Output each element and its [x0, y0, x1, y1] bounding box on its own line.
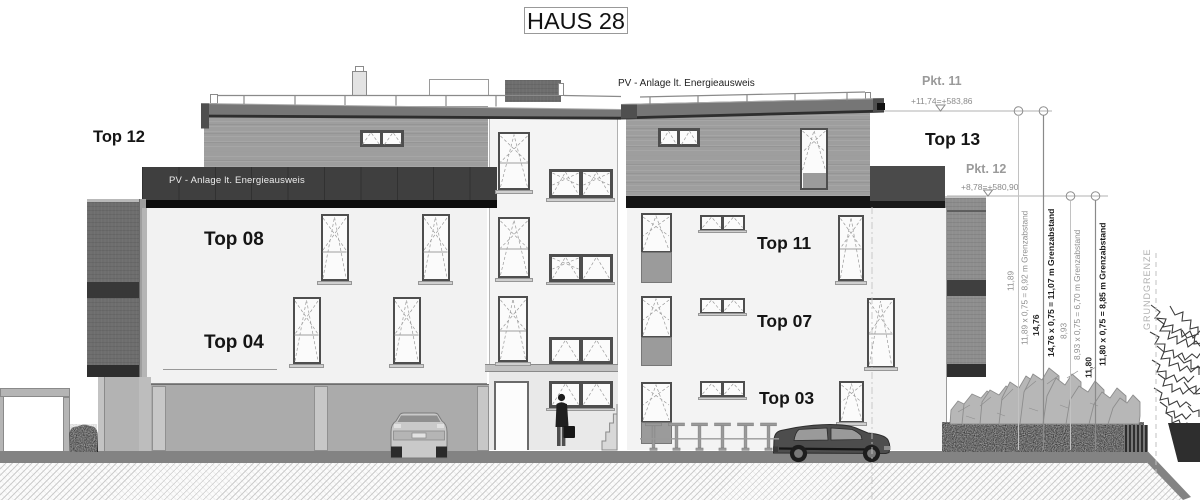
svg-text:14,76: 14,76 [1031, 314, 1041, 336]
svg-text:11,89 x 0,75 = 8,92 m Grenzabs: 11,89 x 0,75 = 8,92 m Grenzabstand [1020, 210, 1030, 345]
svg-text:11,89: 11,89 [1006, 270, 1016, 291]
svg-text:8,93 x 0,75 = 6,70 m Grenzabst: 8,93 x 0,75 = 6,70 m Grenzabstand [1072, 229, 1082, 360]
svg-text:14,76 x 0,75 = 11,07 m Grenzab: 14,76 x 0,75 = 11,07 m Grenzabstand [1046, 209, 1056, 357]
svg-text:11,80: 11,80 [1084, 357, 1094, 378]
svg-text:8,93: 8,93 [1059, 322, 1069, 339]
svg-text:GRUNDGRENZE: GRUNDGRENZE [1142, 248, 1152, 330]
svg-text:11,80 x 0,75 = 8,85 m Grenzabs: 11,80 x 0,75 = 8,85 m Grenzabstand [1098, 222, 1108, 366]
